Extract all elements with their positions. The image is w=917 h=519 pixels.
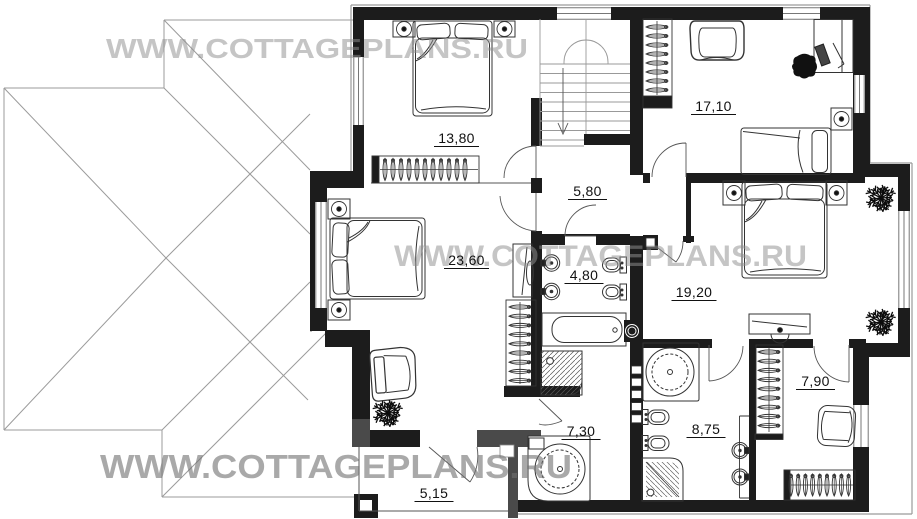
svg-text:5,15: 5,15: [420, 485, 448, 501]
svg-text:23,60: 23,60: [448, 252, 485, 268]
svg-text:WWW.COTTAGEPLANS.RU: WWW.COTTAGEPLANS.RU: [106, 33, 528, 64]
svg-text:4,80: 4,80: [570, 267, 598, 283]
svg-text:8,75: 8,75: [692, 421, 720, 437]
svg-text:13,80: 13,80: [438, 130, 475, 146]
svg-text:WWW.COTTAGEPLANS.RU: WWW.COTTAGEPLANS.RU: [100, 448, 572, 485]
svg-text:5,80: 5,80: [573, 183, 601, 199]
svg-text:7,30: 7,30: [567, 423, 595, 439]
svg-text:19,20: 19,20: [676, 284, 713, 300]
svg-text:7,90: 7,90: [801, 373, 829, 389]
svg-text:17,10: 17,10: [695, 98, 732, 114]
